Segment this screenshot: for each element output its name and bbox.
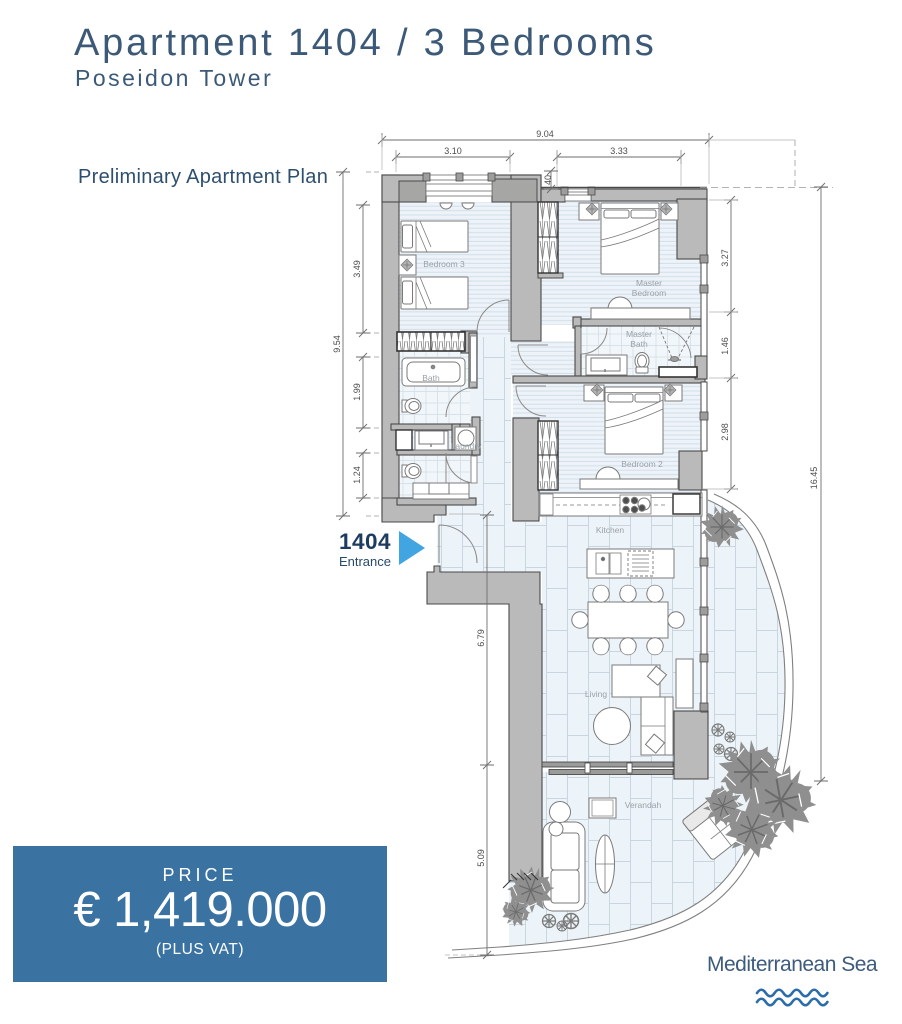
svg-text:Bedroom 3: Bedroom 3 [423, 259, 465, 269]
svg-text:Kitchen: Kitchen [596, 525, 625, 535]
svg-text:2.98: 2.98 [720, 423, 730, 441]
svg-text:3.49: 3.49 [352, 260, 362, 278]
svg-text:3.33: 3.33 [610, 146, 628, 156]
svg-text:Bath: Bath [630, 339, 648, 349]
svg-text:Verandah: Verandah [625, 800, 662, 810]
svg-text:Laundry: Laundry [451, 441, 482, 451]
svg-text:Master: Master [626, 329, 652, 339]
svg-text:1.46: 1.46 [720, 337, 730, 355]
svg-text:Living: Living [585, 689, 607, 699]
svg-text:16.45: 16.45 [809, 467, 819, 490]
svg-text:6.79: 6.79 [476, 629, 486, 647]
svg-text:Master: Master [636, 278, 662, 288]
svg-text:9.04: 9.04 [536, 129, 554, 139]
svg-text:3.10: 3.10 [444, 146, 462, 156]
svg-text:3.27: 3.27 [720, 249, 730, 267]
svg-text:5.09: 5.09 [476, 849, 486, 867]
svg-text:Bedroom 2: Bedroom 2 [621, 459, 663, 469]
svg-text:40: 40 [543, 175, 553, 185]
svg-text:Bedroom: Bedroom [632, 288, 667, 298]
svg-text:Bath: Bath [422, 373, 440, 383]
svg-text:1.99: 1.99 [352, 383, 362, 401]
svg-text:1.24: 1.24 [352, 466, 362, 484]
svg-text:9.54: 9.54 [332, 335, 342, 353]
